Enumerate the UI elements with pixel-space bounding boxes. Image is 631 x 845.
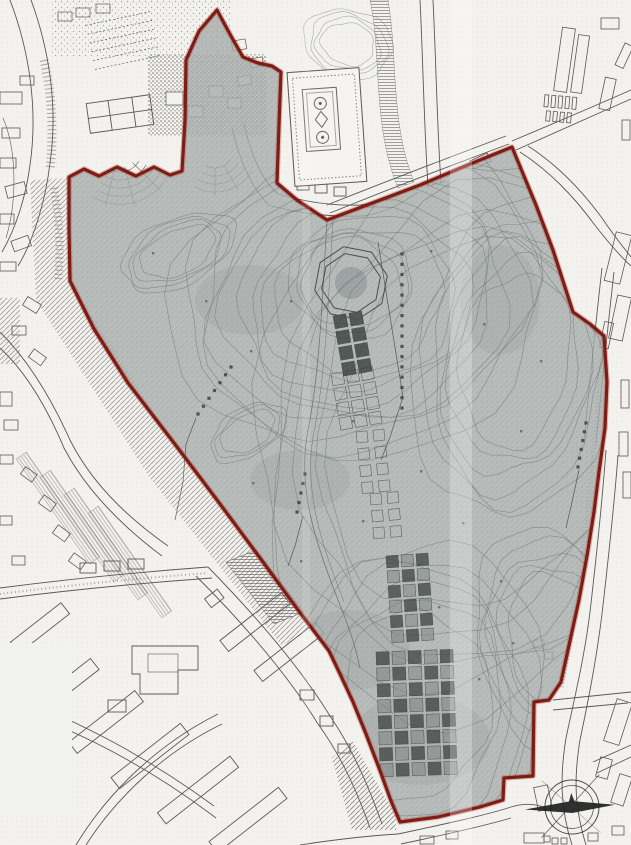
map-canvas (0, 0, 631, 845)
blank-map-area (0, 643, 72, 813)
scanned-site-plan (0, 0, 631, 845)
service-reservoir (287, 68, 367, 187)
slope-hatch-left (0, 298, 20, 364)
